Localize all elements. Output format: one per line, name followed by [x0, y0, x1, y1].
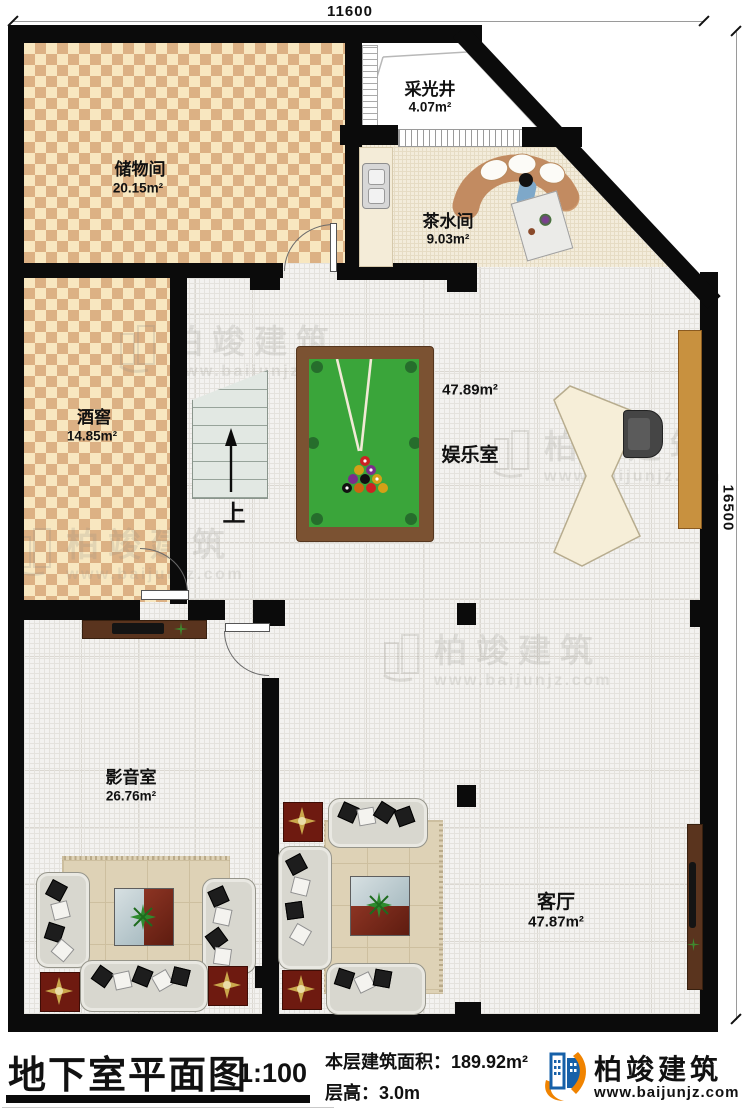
plan-title: 地下室平面图 [8, 1044, 248, 1099]
end-table [40, 972, 80, 1012]
room-area-lightwell: 4.07m² [409, 100, 452, 115]
wall-lightwell-bottom [340, 125, 398, 145]
room-area-living: 47.87m² [528, 914, 584, 931]
wall-left [8, 25, 24, 1032]
storage-floor [24, 43, 345, 263]
flowers [527, 227, 536, 236]
room-area-storage: 20.15m² [113, 181, 163, 196]
title-underline [6, 1095, 310, 1103]
brand-url: www.baijunjz.com [594, 1084, 739, 1101]
av-door-leaf [225, 623, 270, 632]
dimension-line-top [12, 21, 704, 22]
office-chair [623, 410, 663, 458]
room-label-storage: 储物间 [115, 161, 166, 179]
pillow [357, 807, 377, 827]
room-label-entertainment: 娱乐室 [441, 446, 498, 466]
side-cabinet [678, 330, 702, 529]
column [455, 1002, 481, 1015]
plant-living [366, 892, 392, 918]
plant-decor [687, 938, 700, 951]
column [690, 600, 714, 627]
pillow [112, 970, 132, 990]
plant-av [130, 904, 156, 930]
dimension-top: 11600 [327, 3, 373, 20]
wall-cellar-bottom-b [188, 600, 225, 620]
floorplan-canvas: 柏竣建筑 www.baijunjz.com 柏竣建筑 www.baijunjz.… [0, 0, 750, 1115]
sink-basin [368, 169, 385, 185]
pillow [373, 969, 393, 989]
pillow [285, 901, 304, 920]
brand-name: 柏竣建筑 [594, 1048, 722, 1088]
stairs-up-label: 上 [223, 501, 246, 525]
room-area-av: 26.76m² [106, 789, 156, 804]
room-label-lightwell: 采光井 [405, 81, 456, 99]
room-label-tea: 茶水间 [423, 213, 474, 231]
dimension-right: 16500 [720, 485, 737, 532]
sink [362, 163, 390, 209]
pillow [212, 906, 232, 926]
compass-inlay [284, 803, 320, 839]
billiard-balls [342, 456, 388, 493]
brand-logo-icon [538, 1046, 590, 1104]
storage-door-leaf [330, 223, 337, 272]
stairs-up-arrow [222, 428, 240, 494]
compass-inlay [209, 967, 245, 1003]
chair-seat [628, 418, 650, 450]
wall-cellar-right [170, 277, 187, 604]
floor-area-line: 本层建筑面积：189.92m² [325, 1048, 528, 1074]
column [250, 263, 280, 290]
wall-storage-bottom [8, 263, 283, 278]
end-table [282, 970, 322, 1010]
room-area-cellar: 14.85m² [67, 429, 117, 444]
room-area-tea: 9.03m² [427, 232, 470, 247]
title-underline-thin [2, 1107, 334, 1108]
room-label-living: 客厅 [537, 893, 575, 913]
column [255, 966, 279, 988]
flowers [538, 212, 553, 227]
end-table [283, 802, 323, 842]
end-table [208, 966, 248, 1006]
cellar-door-leaf [141, 590, 189, 600]
floor-height-line: 层高：3.0m [325, 1079, 420, 1105]
column [447, 263, 477, 292]
wall-av-living-divider [262, 678, 279, 1014]
compass-inlay [41, 973, 77, 1009]
billiard-table [296, 346, 434, 542]
room-label-av: 影音室 [106, 769, 157, 787]
room-label-cellar: 酒窖 [77, 409, 111, 427]
storage-side-window [362, 45, 378, 127]
billiard-detail [309, 359, 419, 527]
pillar [457, 785, 476, 807]
plan-scale: 1:100 [238, 1058, 307, 1089]
pillar [457, 603, 476, 625]
sink-basin [368, 188, 385, 204]
tv-living [689, 862, 696, 928]
compass-inlay [283, 971, 319, 1007]
tv-av [112, 623, 164, 634]
wall-bottom [8, 1014, 718, 1032]
wall-top [8, 25, 482, 43]
room-area-entertainment: 47.89m² [442, 382, 498, 399]
plant-decor [174, 622, 188, 636]
pillow [213, 947, 232, 966]
wall-cellar-bottom-a [8, 600, 140, 620]
